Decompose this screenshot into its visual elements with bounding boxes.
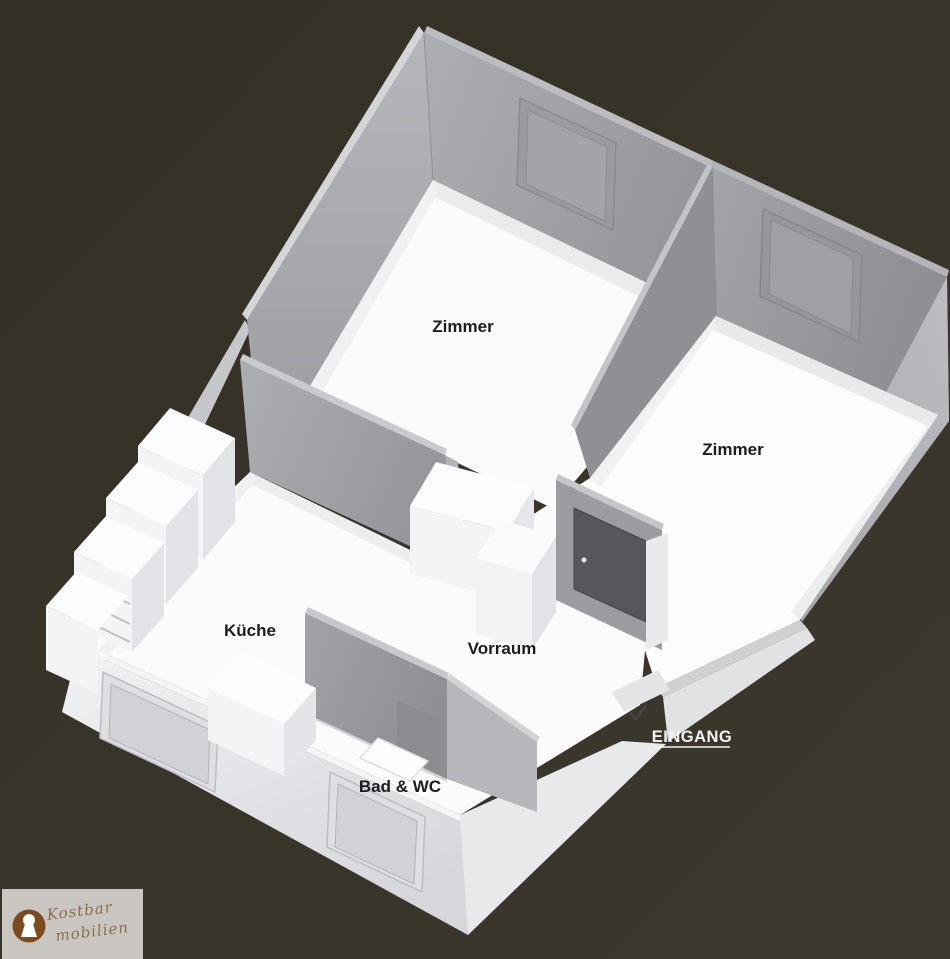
entrance-label: EINGANG xyxy=(652,728,733,746)
room-label-vorraum: Vorraum xyxy=(468,639,537,658)
company-logo: Kostbar mobilien xyxy=(2,889,143,959)
room-label-kueche: Küche xyxy=(224,621,276,640)
room-label-bad-wc: Bad & WC xyxy=(359,777,441,796)
room-label-zimmer-1: Zimmer xyxy=(432,317,494,336)
door-handle xyxy=(582,558,587,563)
floorplan-canvas: Zimmer Zimmer Küche Vorraum Bad & WC EIN… xyxy=(0,0,950,959)
room-label-zimmer-2: Zimmer xyxy=(702,440,764,459)
entrance-niche-wall xyxy=(646,533,668,650)
floorplan-3d-render: Zimmer Zimmer Küche Vorraum Bad & WC EIN… xyxy=(0,0,950,959)
wardrobe-column-front xyxy=(476,558,532,650)
